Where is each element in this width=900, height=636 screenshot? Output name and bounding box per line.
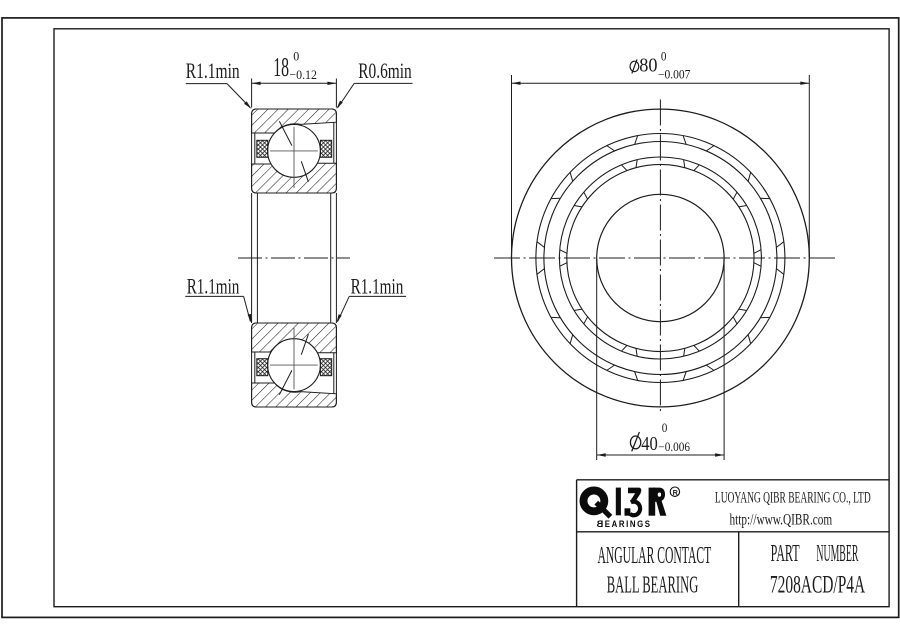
svg-text:BALL BEARING: BALL BEARING <box>607 572 699 598</box>
svg-text:PART: PART <box>771 541 800 567</box>
svg-text:R1.1min: R1.1min <box>351 273 404 298</box>
svg-text:R1.1min: R1.1min <box>187 273 240 298</box>
svg-text:B: B <box>596 519 603 529</box>
svg-text:18: 18 <box>273 52 289 82</box>
svg-text:−0.12: −0.12 <box>289 67 317 82</box>
svg-text:LUOYANG QIBR BEARING CO., LTD: LUOYANG QIBR BEARING CO., LTD <box>715 490 871 507</box>
svg-text:R: R <box>673 488 679 497</box>
svg-text:80: 80 <box>639 54 657 76</box>
svg-text:http://www.QIBR.com: http://www.QIBR.com <box>730 512 833 529</box>
svg-text:−0.007: −0.007 <box>658 68 690 82</box>
svg-text:0: 0 <box>661 50 667 64</box>
svg-text:NUMBER: NUMBER <box>816 541 858 567</box>
svg-text:0: 0 <box>662 421 668 435</box>
svg-text:−0.006: −0.006 <box>658 440 690 454</box>
svg-text:R1.1min: R1.1min <box>186 58 240 83</box>
svg-text:0: 0 <box>293 49 299 64</box>
svg-text:40: 40 <box>641 433 658 455</box>
svg-text:ANGULAR CONTACT: ANGULAR CONTACT <box>598 543 712 569</box>
svg-text:R0.6min: R0.6min <box>358 58 411 83</box>
svg-text:7208ACD/P4A: 7208ACD/P4A <box>770 570 866 599</box>
svg-text:EARINGS: EARINGS <box>605 519 652 529</box>
